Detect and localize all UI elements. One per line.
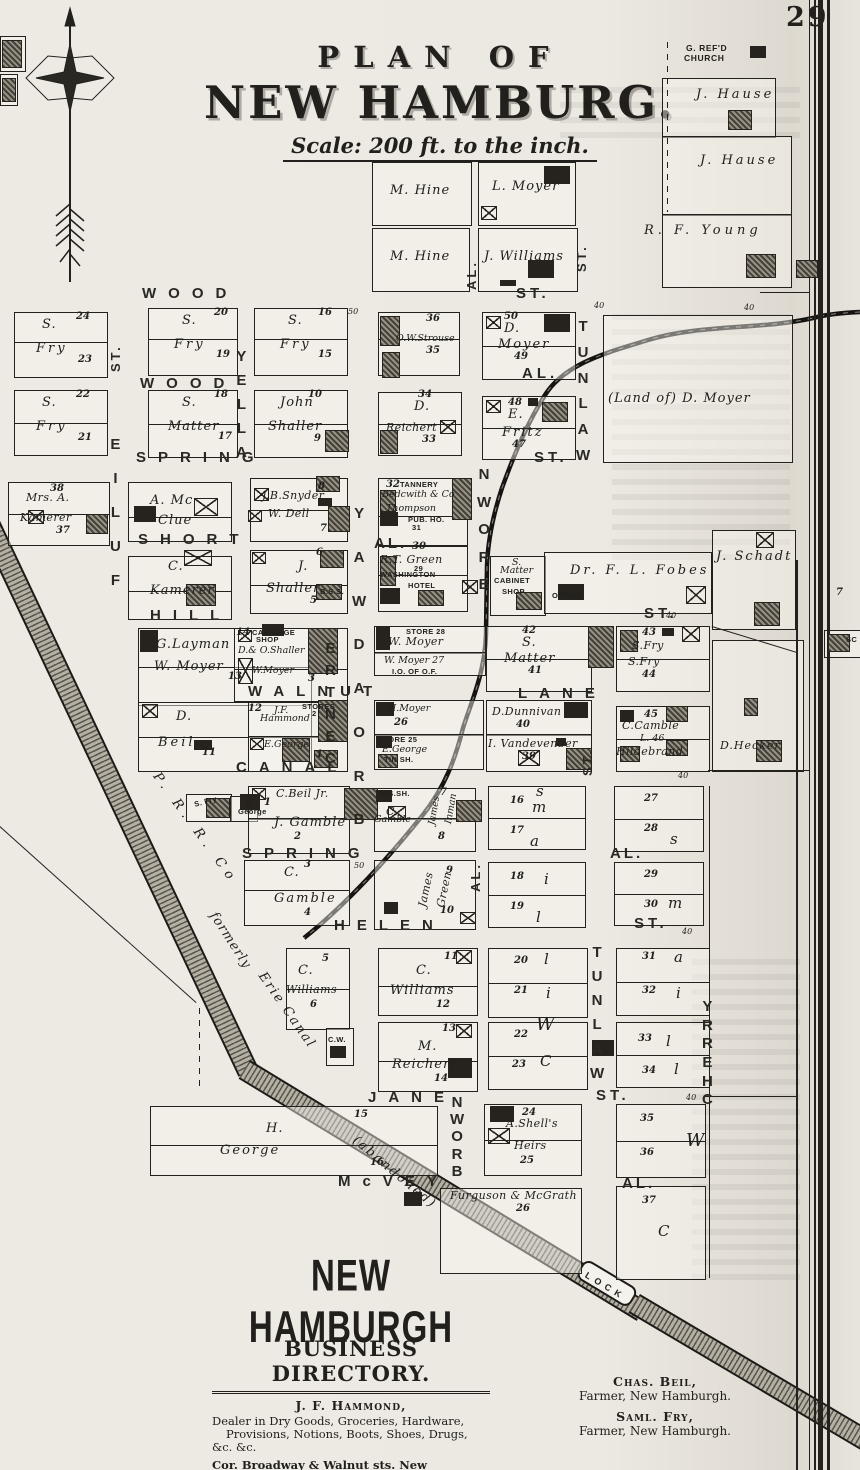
map-label: 5 — [322, 954, 329, 964]
map-line — [704, 1096, 798, 1097]
lot-divider — [617, 1055, 709, 1056]
map-label: HOTEL — [408, 582, 435, 590]
lot-box — [544, 552, 712, 614]
map-label: D. — [414, 400, 430, 413]
map-label: 4 — [304, 908, 311, 918]
hatched-building-icon — [325, 430, 349, 452]
crossed-building-icon — [460, 912, 476, 924]
street-letter: R — [477, 549, 491, 577]
map-label: Hammond — [260, 714, 310, 724]
map-line — [708, 770, 810, 771]
street-letter: A — [576, 421, 590, 447]
map-label: 14 — [236, 628, 250, 638]
street-letter: U — [590, 968, 604, 992]
map-label: 26 — [516, 1204, 530, 1214]
lot-box — [616, 948, 710, 1016]
map-label: 7 — [836, 588, 843, 598]
map-label: C.Beil Jr. — [276, 788, 329, 799]
map-label: 13 — [228, 672, 242, 682]
map-label: 40 — [686, 1094, 696, 1102]
street-letter: Y — [702, 998, 713, 1017]
street-label: HILL — [150, 608, 231, 623]
hatched-building-icon — [728, 110, 752, 130]
map-label: 40 — [682, 928, 692, 936]
crossed-building-icon — [486, 400, 501, 413]
map-label: Kamerer — [20, 512, 72, 523]
map-label: l — [544, 952, 549, 967]
street-label: ST. — [596, 1088, 630, 1103]
map-label: Furguson & McGrath — [450, 1190, 577, 1201]
street-letter: T — [576, 318, 590, 344]
map-label: 16 — [510, 796, 524, 806]
map-title-line1: PLAN OF — [190, 40, 690, 74]
building-icon — [528, 398, 538, 406]
street-letter: R — [702, 1035, 713, 1054]
map-label: E. — [508, 408, 524, 421]
lot-divider — [151, 1145, 437, 1146]
street-letter: E — [325, 640, 336, 662]
map-label: 40 — [516, 720, 530, 730]
street-letter: D — [352, 636, 366, 680]
street-letter: E — [702, 1054, 713, 1073]
map-label: CHURCH — [684, 54, 724, 63]
map-label: 22 — [76, 390, 90, 400]
map-label: B.S.SH. — [380, 790, 410, 798]
map-label: C. — [298, 964, 314, 977]
map-label: 17 — [510, 826, 524, 836]
street-letter: L — [110, 504, 121, 538]
map-line — [760, 292, 810, 293]
crossed-building-icon — [462, 580, 478, 594]
lot-divider — [489, 818, 585, 819]
map-label: R. F. Young — [644, 224, 762, 237]
map-label: SHOP — [256, 636, 279, 644]
business-directory: NEW HAMBURGH BUSINESS DIRECTORY. J. F. H… — [212, 1250, 490, 1470]
street-letter: N — [590, 992, 604, 1016]
map-label: J. — [298, 560, 308, 573]
map-label: Fry — [36, 342, 68, 355]
map-label: J. Williams — [484, 250, 564, 263]
map-label: H.Moyer — [388, 704, 430, 714]
map-label: D.& O.Shaller — [238, 646, 305, 656]
lot-box — [616, 1022, 710, 1088]
street-letter: W — [352, 593, 366, 637]
map-label: S. — [288, 314, 303, 327]
building-icon — [330, 1046, 346, 1058]
street-letter: Y — [236, 348, 247, 372]
vertical-street-suffix-label: AL. — [464, 260, 479, 290]
map-label: 44 — [642, 670, 656, 680]
map-label: 15 — [318, 350, 332, 360]
street-letter: R — [450, 1146, 464, 1163]
map-label: (Land of) D. Moyer — [608, 392, 751, 405]
map-label: 23 — [78, 355, 92, 365]
map-label: Williams — [390, 984, 455, 997]
map-label: Fry — [280, 338, 312, 351]
street-letter: Y — [352, 505, 366, 549]
map-label: s — [670, 832, 678, 847]
map-label: Gamble — [374, 815, 411, 825]
map-label: Thompson — [386, 504, 436, 514]
map-label: 12 — [436, 1000, 450, 1010]
street-label: SPRING — [136, 450, 266, 465]
hatched-building-icon — [542, 402, 568, 422]
map-label: R.T. Green — [380, 554, 443, 565]
street-label: ST. — [516, 286, 550, 301]
map-label: 50 — [354, 862, 364, 870]
street-label: JANE — [368, 1090, 456, 1105]
map-line — [199, 1008, 200, 1092]
map-label: Moyer — [498, 338, 550, 351]
street-letter: U — [576, 344, 590, 370]
map-label: STORES — [302, 703, 335, 711]
map-label: J. Hause — [700, 154, 778, 167]
map-line — [815, 0, 817, 1470]
map-label: W. Moyer — [154, 660, 224, 673]
building-icon — [380, 512, 398, 526]
street-letter: W — [576, 447, 590, 473]
map-label: S. — [42, 396, 57, 409]
map-label: 22 — [514, 1030, 528, 1040]
map-label: J. Gamble — [274, 816, 346, 829]
building-icon — [544, 314, 570, 332]
map-label: 10 — [440, 906, 454, 916]
map-label: Fritz — [502, 426, 543, 439]
vertical-street-suffix-label: ST. — [574, 244, 589, 272]
map-label: A. Mc — [150, 494, 193, 507]
farmer-desc: Farmer, New Hamburgh. — [540, 1424, 770, 1438]
map-label: l — [674, 1062, 679, 1077]
street-letter: A — [352, 549, 366, 593]
farmer-listings: Chas. Beil, Farmer, New Hamburgh. Saml. … — [540, 1368, 770, 1438]
lot-divider — [489, 895, 585, 896]
map-label: 29 — [644, 870, 658, 880]
street-letter: E — [236, 372, 247, 396]
street-letter: R — [352, 768, 366, 812]
map-label: 37 — [56, 526, 70, 536]
map-label: 20 — [214, 308, 228, 318]
crossed-building-icon — [194, 498, 218, 516]
map-label: H. — [266, 1122, 283, 1135]
map-label: 24 — [76, 312, 90, 322]
map-label: George — [238, 808, 267, 816]
map-label: 1 — [264, 798, 271, 808]
map-label: 19 — [510, 902, 524, 912]
map-label: 11 — [202, 748, 216, 758]
street-letter: F — [110, 572, 121, 606]
map-label: 31 — [412, 524, 421, 532]
map-label: 26 — [394, 718, 408, 728]
crossed-building-icon — [488, 1128, 510, 1144]
map-label: TANNERY — [400, 481, 438, 489]
map-label: 36 — [426, 314, 440, 324]
map-label: 36 — [640, 1148, 654, 1158]
street-letter: U — [110, 538, 121, 572]
map-label: 40 — [666, 612, 676, 620]
hatched-building-icon — [328, 506, 350, 532]
map-label: J. Hause — [696, 88, 774, 101]
vertical-street-suffix-label: ST. — [580, 748, 595, 776]
map-label: G.Layman — [156, 638, 230, 651]
map-label: 37 — [642, 1196, 656, 1206]
map-label: 32 — [642, 986, 656, 996]
street-label: CANAL — [236, 760, 349, 775]
map-line — [818, 0, 823, 1470]
map-label: l — [536, 910, 541, 925]
street-label: WOOD — [142, 286, 238, 301]
map-label: Matter — [168, 420, 219, 433]
map-label: 33 — [422, 435, 436, 445]
map-label: W. Dell — [268, 508, 310, 519]
map-label: M. Hine — [390, 250, 450, 263]
map-label: Beil — [158, 736, 196, 749]
map-label: Hildebrand — [616, 746, 683, 757]
map-line — [797, 560, 799, 1470]
map-label: 16 — [318, 308, 332, 318]
map-label: C.W. — [328, 1036, 346, 1044]
map-label: 23 — [512, 1060, 526, 1070]
map-label: S.Fry — [632, 640, 664, 651]
map-label: 2 — [312, 710, 317, 718]
hatched-building-icon — [2, 78, 16, 102]
map-label: CABINET — [494, 577, 530, 585]
map-label: Mrs. A. — [26, 492, 69, 503]
map-label: D.Hecker — [720, 740, 781, 751]
street-label: SHORT — [138, 532, 251, 547]
map-label: Heirs — [514, 1140, 547, 1151]
map-label: Williams — [286, 984, 337, 995]
map-label: C — [540, 1054, 551, 1069]
crossed-building-icon — [248, 510, 262, 522]
map-label: 9 — [314, 434, 321, 444]
directory-entry-name: J. F. Hammond, — [212, 1398, 490, 1413]
map-label: 11 — [444, 952, 458, 962]
hatched-building-icon — [320, 550, 344, 568]
vertical-street-suffix-label: AL. — [468, 862, 483, 892]
vertical-street-suffix-label: ST. — [108, 344, 123, 372]
street-letter: O — [450, 1128, 464, 1145]
street-letter: R — [702, 1017, 713, 1036]
map-label: M. Hine — [390, 184, 450, 197]
street-label: AL. — [610, 846, 643, 861]
map-label: 13 — [442, 1024, 456, 1034]
street-letter: L — [576, 395, 590, 421]
map-label: S. — [42, 318, 57, 331]
vertical-street-label-brown: NWORB — [477, 466, 491, 604]
street-letter: I — [110, 470, 121, 504]
map-label: O.W.Strouse — [396, 334, 455, 344]
street-letter: E — [110, 436, 121, 470]
map-label: Shaller — [266, 582, 320, 595]
map-label: W. Moyer 27 — [384, 656, 444, 666]
map-label: 18 — [214, 390, 228, 400]
map-label: L. Moyer — [492, 180, 559, 193]
map-label: W — [686, 1132, 705, 1150]
street-letter: W — [590, 1065, 604, 1089]
map-label: Bedcwith & Co — [382, 490, 455, 500]
map-label: A.Shell's — [506, 1118, 558, 1129]
map-label: 40 — [594, 302, 604, 310]
map-scale-note: Scale: 200 ft. to the inch. — [283, 133, 597, 162]
map-label: S.Fry — [628, 656, 660, 667]
map-label: Matter — [500, 566, 533, 576]
building-icon — [662, 628, 674, 636]
map-label: B.S.S. — [320, 588, 344, 596]
hatched-building-icon — [754, 602, 780, 626]
lot-divider — [489, 983, 587, 984]
map-label: Kamerer — [150, 584, 215, 597]
map-label: 49 — [514, 352, 528, 362]
street-letter: O — [477, 521, 491, 549]
lot-box — [614, 786, 704, 852]
building-icon — [384, 902, 398, 914]
map-label: 2 — [294, 832, 301, 842]
directory-entry-address: Cor. Broadway & Walnut sts. New Hamburgh… — [212, 1458, 490, 1470]
lot-box — [488, 948, 588, 1018]
map-label: a — [674, 950, 683, 965]
map-line — [809, 0, 810, 1470]
map-label: 5 — [310, 596, 317, 606]
compass-north-arrow-icon — [20, 4, 170, 304]
hatched-building-icon — [2, 40, 22, 68]
lot-divider — [615, 819, 703, 820]
map-label: 18 — [510, 872, 524, 882]
map-label: Clue — [158, 514, 192, 527]
crossed-building-icon — [756, 532, 774, 548]
map-line — [667, 42, 668, 212]
street-letter: L — [236, 420, 247, 444]
map-label: 25 — [520, 1156, 534, 1166]
map-label: 34 — [642, 1066, 656, 1076]
hatched-building-icon — [456, 800, 482, 822]
map-label: I. Vandevender — [488, 738, 578, 749]
map-label: 31 — [642, 952, 656, 962]
map-label: 40 — [678, 772, 688, 780]
crossed-building-icon — [456, 1024, 472, 1038]
map-label: SC — [846, 636, 857, 644]
map-label: S. — [182, 314, 197, 327]
hatched-building-icon — [452, 478, 472, 520]
crossed-building-icon — [682, 626, 700, 642]
map-label: J.B.Snyder — [262, 490, 324, 501]
crossed-building-icon — [486, 316, 501, 329]
map-label: 3 — [304, 860, 311, 870]
map-label: l — [666, 1034, 671, 1049]
map-label: 28 — [644, 824, 658, 834]
street-letter: O — [352, 724, 366, 768]
map-label: I.O. OF O.F. — [392, 668, 437, 676]
map-label: m — [532, 800, 546, 815]
hatched-building-icon — [588, 626, 614, 668]
vertical-street-label-brown: NWORB — [450, 1094, 464, 1180]
map-label: 47 — [512, 440, 526, 450]
map-label: C. — [168, 560, 184, 573]
map-label: 30 — [412, 542, 426, 552]
street-label: AL. — [622, 1176, 655, 1191]
map-label: 17 — [218, 432, 232, 442]
lot-divider — [615, 894, 703, 895]
street-letter: R — [325, 662, 336, 684]
map-label: Fry — [174, 338, 206, 351]
map-label: 21 — [514, 986, 528, 996]
map-label: 33 — [638, 1034, 652, 1044]
map-label: 6 — [310, 1000, 317, 1010]
hatched-building-icon — [382, 352, 400, 378]
map-label: 6 — [316, 548, 323, 558]
lot-divider — [617, 982, 709, 983]
street-letter: B — [450, 1163, 464, 1180]
map-label: John — [280, 396, 314, 409]
map-label: E.George — [264, 740, 309, 750]
farmer-desc: Farmer, New Hamburgh. — [540, 1389, 770, 1403]
map-label: G. REF'D — [686, 44, 727, 53]
map-label: 50 — [348, 308, 358, 316]
map-label: i — [544, 872, 549, 887]
street-letter: T — [590, 944, 604, 968]
crossed-building-icon — [481, 206, 497, 220]
map-label: S. — [182, 396, 197, 409]
crossed-building-icon — [440, 420, 456, 434]
street-label: AL. — [374, 536, 407, 551]
street-label: WALNUT — [248, 684, 384, 699]
map-label: s — [536, 784, 544, 799]
lot-box — [603, 315, 793, 463]
map-label: 14 — [434, 1074, 448, 1084]
vertical-street-label-broadway: YAWDAORB — [352, 505, 366, 855]
crossed-building-icon — [252, 552, 266, 564]
map-label: 35 — [640, 1114, 654, 1124]
map-label: Shaller — [268, 420, 322, 433]
crossed-building-icon — [456, 950, 472, 964]
street-letter: C — [702, 1091, 713, 1110]
hatched-building-icon — [86, 514, 108, 534]
street-letter: H — [702, 1073, 713, 1092]
building-icon — [564, 702, 588, 718]
page-number: 29 — [786, 2, 830, 33]
map-label: D. — [176, 710, 192, 723]
map-label: 21 — [78, 433, 92, 443]
map-label: 30 — [644, 900, 658, 910]
map-label: 8 — [438, 832, 445, 842]
map-label: C. — [284, 866, 300, 879]
map-label: L. 46 — [640, 734, 664, 744]
map-label: C — [658, 1224, 669, 1239]
lot-divider — [489, 1056, 587, 1057]
street-letter: W — [450, 1111, 464, 1128]
map-label: 41 — [528, 666, 542, 676]
crossed-building-icon — [250, 738, 264, 750]
street-label: AL. — [522, 366, 558, 381]
building-icon — [380, 588, 400, 604]
map-label: Fry — [36, 420, 68, 433]
map-label: 35 — [426, 346, 440, 356]
map-label: W — [536, 1016, 555, 1034]
street-letter: B — [477, 576, 491, 604]
street-letter: N — [576, 370, 590, 396]
map-label: Matter — [504, 652, 555, 665]
map-label: 15 — [354, 1110, 368, 1120]
map-label: i — [546, 986, 551, 1001]
map-label: i — [676, 986, 681, 1001]
building-icon — [500, 280, 516, 286]
map-label: STORE 25 — [378, 736, 417, 744]
street-letter: L — [590, 1016, 604, 1040]
map-label: C. — [416, 964, 432, 977]
map-label: J. Schadt — [716, 550, 792, 563]
building-icon — [134, 506, 156, 522]
map-label: Gamble — [274, 892, 337, 905]
map-label: W.Moyer — [252, 666, 294, 676]
